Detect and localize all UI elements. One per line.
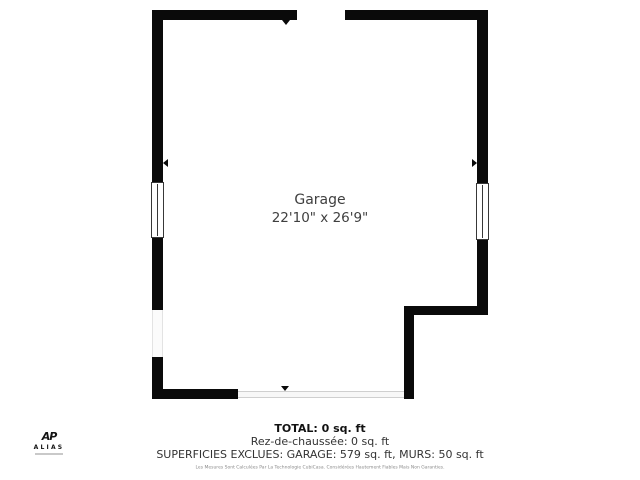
arrow-marker-bottom-icon <box>281 386 289 391</box>
garage-door-opening <box>238 391 404 398</box>
summary-total: TOTAL: 0 sq. ft <box>0 422 640 435</box>
logo-monogram: AP <box>31 431 67 442</box>
wall-bottom-left-segment <box>152 389 238 399</box>
summary-exclusions: SUPERFICIES EXCLUES: GARAGE: 579 sq. ft,… <box>0 448 640 461</box>
logo-tagline-line <box>35 453 63 455</box>
wall-notch-vertical <box>404 306 414 399</box>
wall-top-right-segment <box>345 10 488 20</box>
summary-disclaimer: Les Mesures Sont Calculées Par La Techno… <box>160 465 480 470</box>
side-door-opening <box>152 310 163 357</box>
logo-brand-name: ALIAS <box>31 444 67 451</box>
wall-top-left-segment <box>152 10 297 20</box>
room-label-block: Garage 22'10" x 26'9" <box>152 192 488 228</box>
arrow-marker-left-icon <box>163 159 168 167</box>
wall-notch-horizontal <box>404 306 488 315</box>
summary-ground-floor: Rez-de-chaussée: 0 sq. ft <box>0 435 640 448</box>
room-name: Garage <box>152 192 488 209</box>
area-summary-block: TOTAL: 0 sq. ft Rez-de-chaussée: 0 sq. f… <box>0 422 640 475</box>
brand-logo: AP ALIAS <box>31 431 67 455</box>
arrow-marker-top-icon <box>282 20 290 25</box>
room-dimensions: 22'10" x 26'9" <box>152 209 488 228</box>
arrow-marker-right-icon <box>472 159 477 167</box>
floor-plan-page: Garage 22'10" x 26'9" TOTAL: 0 sq. ft Re… <box>0 0 640 480</box>
wall-left-upper-segment <box>152 10 163 310</box>
floor-plan: Garage 22'10" x 26'9" <box>0 0 640 480</box>
wall-right <box>477 10 488 315</box>
